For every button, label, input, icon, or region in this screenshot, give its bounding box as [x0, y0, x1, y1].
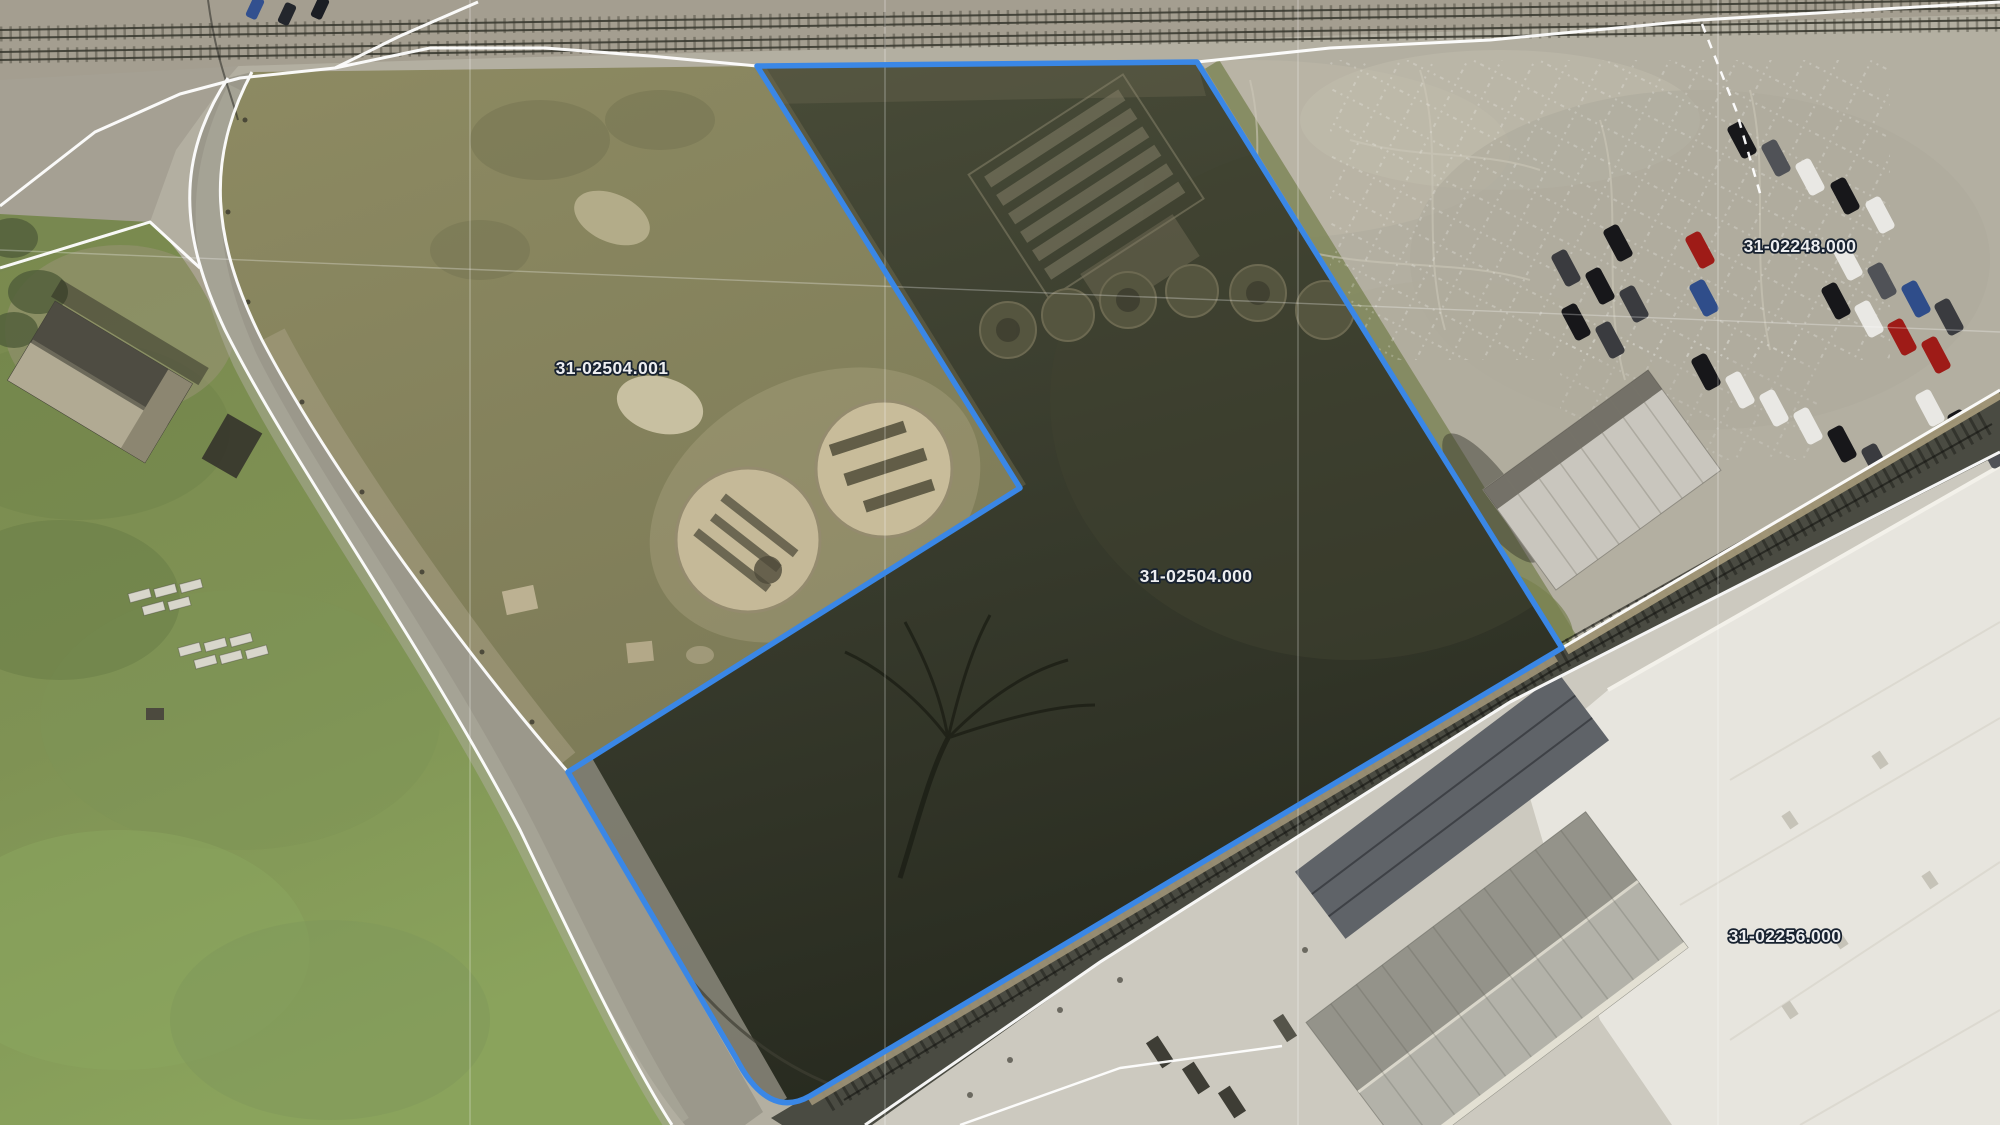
parcel-label: 31-02248.000 — [1744, 236, 1857, 256]
foundation-hatch-marks — [1330, 60, 1890, 360]
gis-map-viewport[interactable]: 31-02504.001 31-02504.000 31-02248.000 3… — [0, 0, 2000, 1125]
aerial-map: 31-02504.001 31-02504.000 31-02248.000 3… — [0, 0, 2000, 1125]
circular-pad-east — [816, 401, 952, 537]
parcel-label: 31-02504.001 — [556, 358, 669, 378]
parcel-label: 31-02256.000 — [1729, 926, 1842, 946]
circular-pad-west — [676, 468, 820, 612]
parcel-label: 31-02504.000 — [1140, 566, 1253, 586]
